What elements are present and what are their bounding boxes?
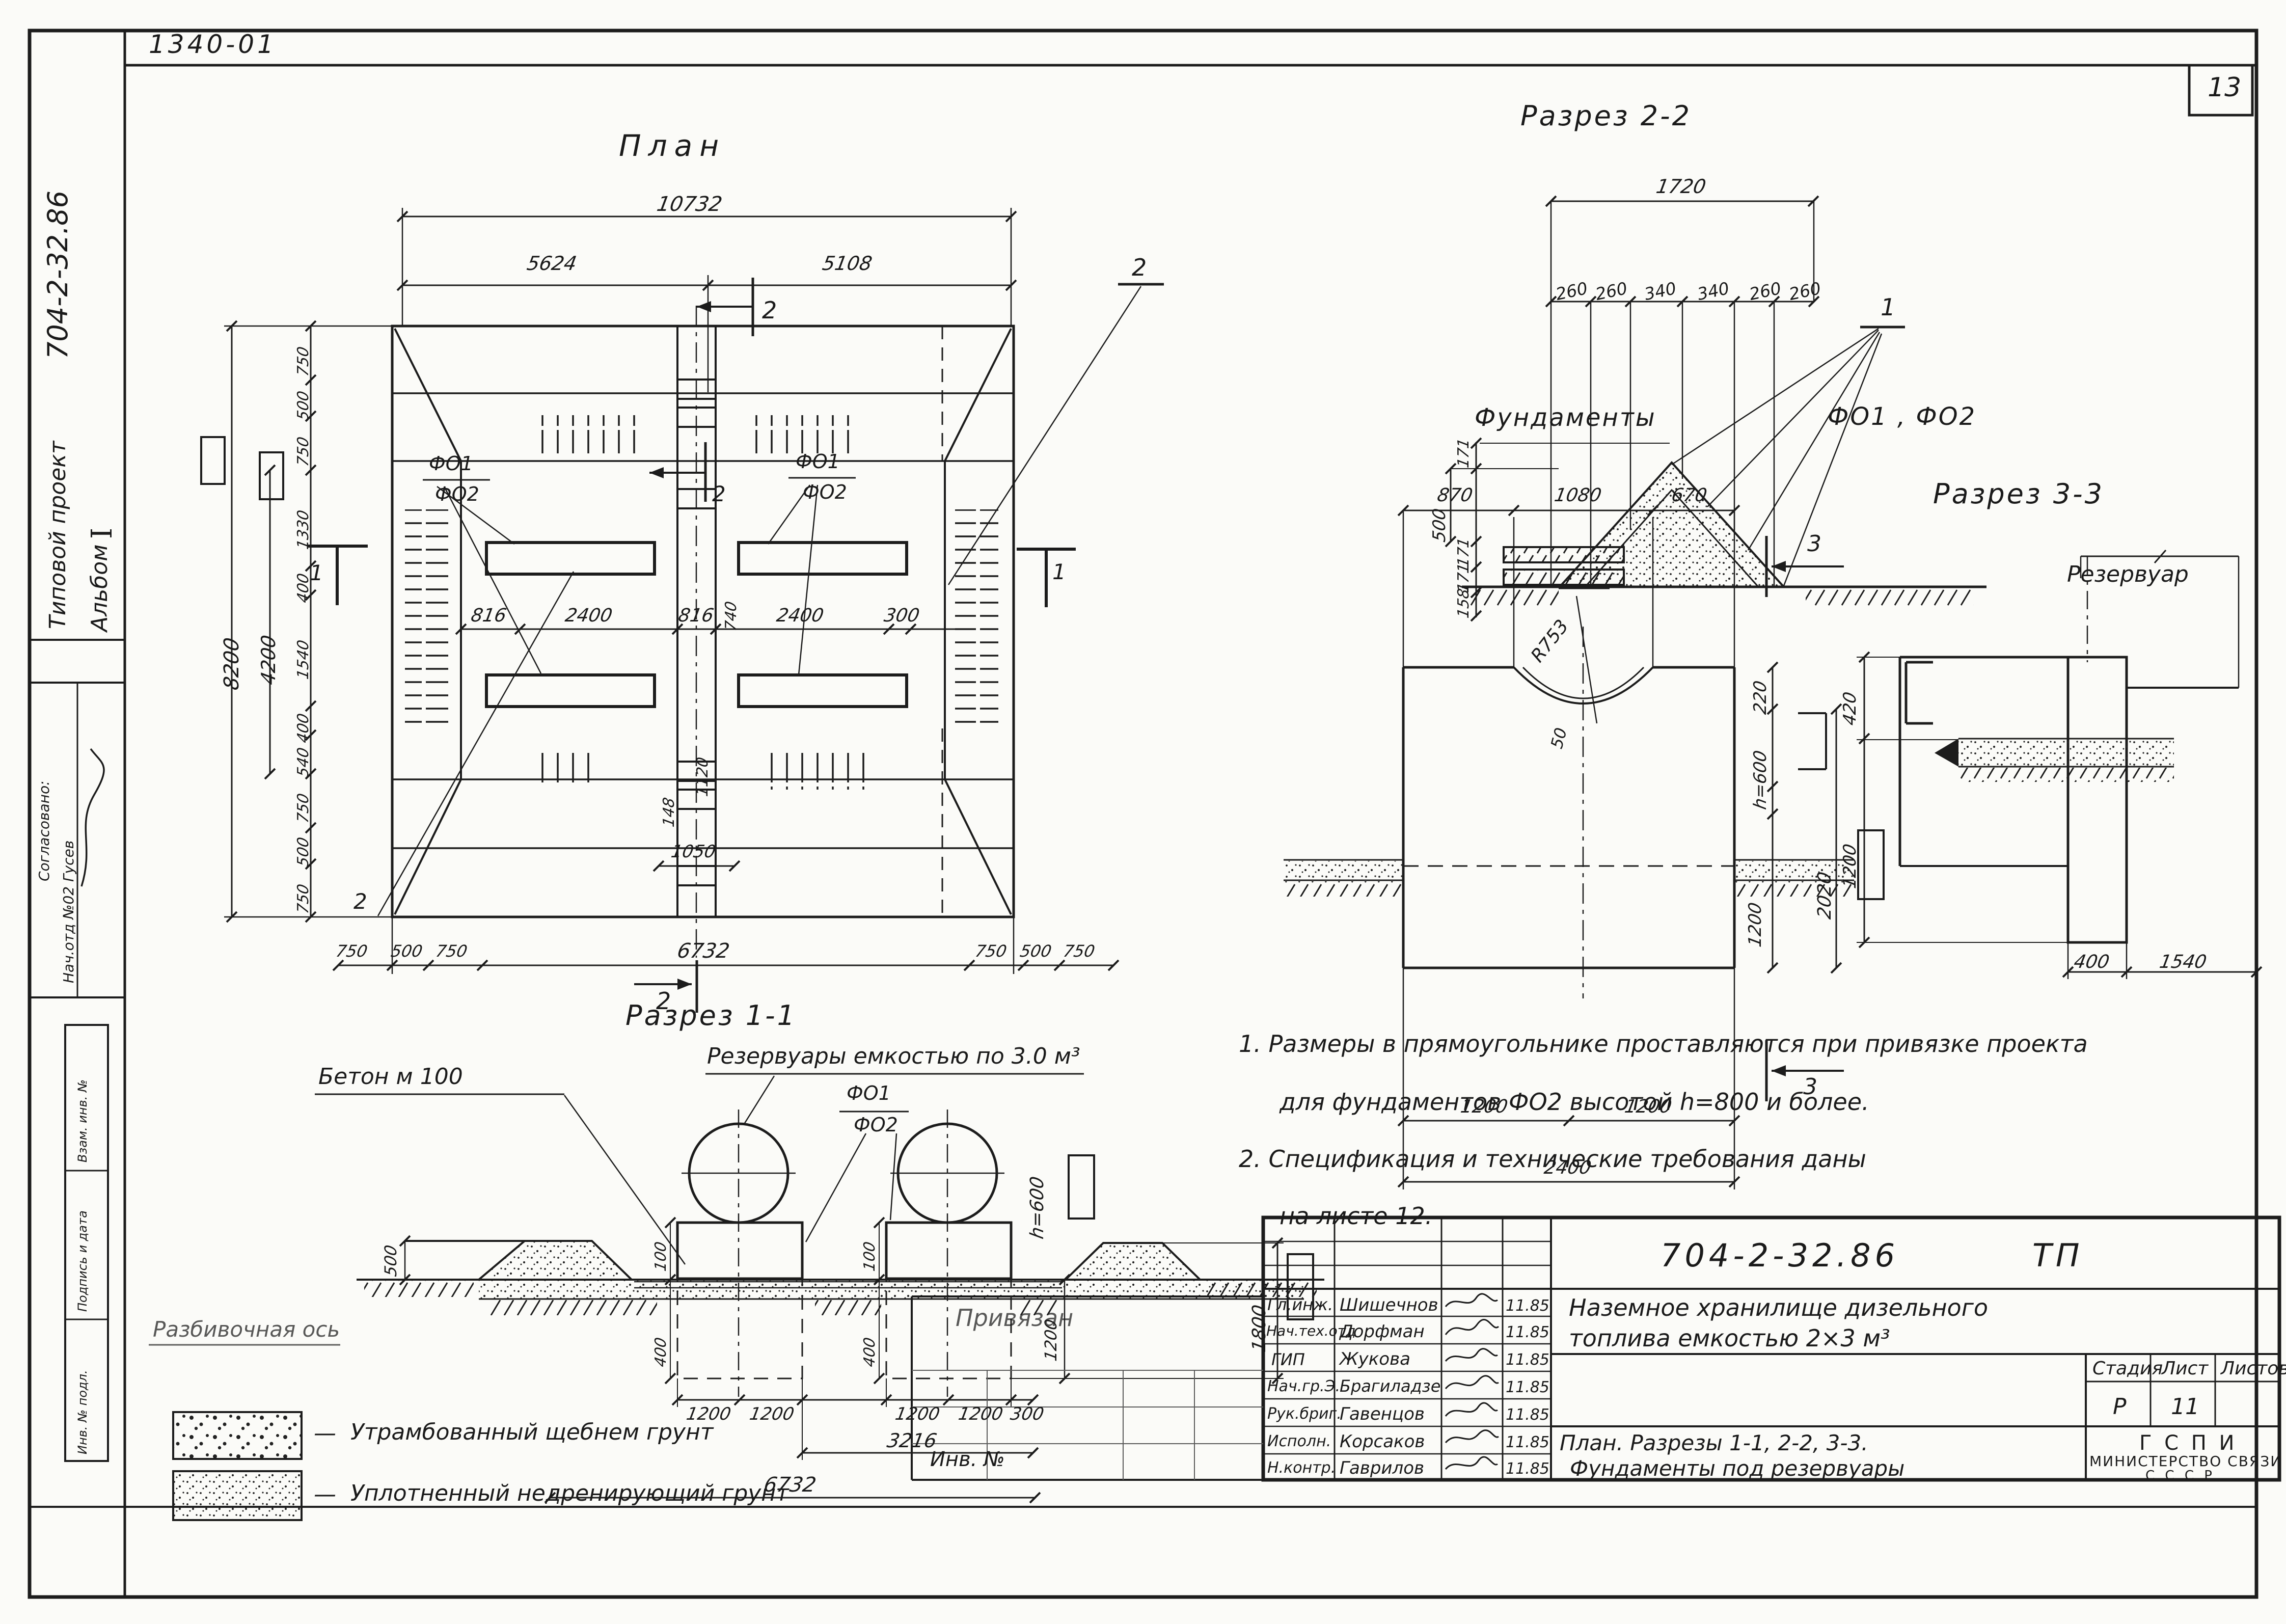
- sidebar-album-number: I: [86, 528, 119, 539]
- dim-label: 540: [294, 746, 312, 778]
- drawing-set-code: 1340-01: [149, 30, 277, 59]
- foundations-title-marks: ФО1 , ФО2: [1828, 402, 1976, 431]
- row-role: Исполн.: [1267, 1432, 1331, 1450]
- dim-label: 1200: [1745, 901, 1765, 949]
- note-line: на листе 12.: [1280, 1202, 1432, 1230]
- dim-label: 8200: [220, 636, 243, 692]
- note-line: для фундаментов ФО2 высотой h=800 и боле…: [1280, 1088, 1869, 1116]
- section-marker-1: 1: [1052, 559, 1066, 584]
- project-title-line1: Наземное хранилище дизельного: [1569, 1294, 1988, 1321]
- dim-label: 300: [882, 605, 921, 626]
- plan-title: План: [619, 128, 726, 163]
- dim-label: 750: [294, 436, 312, 468]
- dim-label: 750: [434, 941, 469, 961]
- section-1-1-title: Разрез 1-1: [625, 999, 797, 1032]
- dim-label: 100: [652, 1240, 670, 1273]
- sheet-value: 11: [2171, 1394, 2199, 1420]
- dim-label: 500: [390, 941, 424, 961]
- note-line: 2. Спецификация и технические требования…: [1239, 1145, 1866, 1173]
- dim-label: 816: [469, 605, 508, 626]
- dim-label: 5108: [821, 252, 874, 275]
- foundation-mark: ФО1: [429, 452, 473, 475]
- sidebar-album-label: Альбом: [87, 545, 113, 632]
- dim-label: 400: [294, 712, 312, 744]
- dim-label: 1540: [2158, 952, 2208, 972]
- frame-field-podpis-data: Подпись и дата: [75, 1210, 90, 1312]
- dim-label: 1200: [1840, 842, 1860, 890]
- dim-label: 670: [1670, 485, 1708, 506]
- stage-header: Стадия: [2092, 1358, 2163, 1379]
- row-date: 11.85: [1506, 1297, 1549, 1315]
- dim-label: 1540: [294, 639, 312, 681]
- dim-label: 158: [1455, 587, 1473, 619]
- dim-label: 2400: [775, 605, 825, 626]
- dim-label: 870: [1435, 485, 1474, 506]
- dim-label: 420: [1840, 690, 1860, 727]
- dim-label: 148: [660, 796, 678, 828]
- row-date: 11.85: [1506, 1323, 1549, 1341]
- dim-label: 816: [676, 605, 715, 626]
- row-role: ГИП: [1271, 1350, 1305, 1369]
- dim-label: 1200: [748, 1404, 796, 1424]
- foundation-mark: ФО1: [847, 1082, 891, 1104]
- sidebar-project-number: 704-2-32.86: [42, 191, 74, 359]
- section-2-2-title: Разрез 2-2: [1520, 100, 1692, 132]
- row-name: Шишечнов: [1340, 1295, 1438, 1315]
- dim-label: 220: [1750, 679, 1771, 716]
- axis-label: Разбивочная ось: [153, 1317, 340, 1342]
- sheet-content-line1: План. Разрезы 1-1, 2-2, 3-3.: [1560, 1430, 1868, 1455]
- row-date: 11.85: [1506, 1406, 1549, 1424]
- foundations-title: Фундаменты: [1475, 403, 1656, 432]
- row-name: Дорфман: [1340, 1321, 1425, 1342]
- dim-label: 4200: [257, 633, 280, 686]
- foundation-mark: ФО2: [803, 481, 847, 503]
- legend-dash: —: [314, 1420, 336, 1446]
- dim-label: 10732: [655, 193, 724, 216]
- section-marker-1: 1: [310, 560, 323, 585]
- dim-label: 750: [335, 941, 369, 961]
- dim-label: 1050: [669, 842, 717, 862]
- org-name: Г С П И: [2139, 1431, 2237, 1455]
- foundation-mark: ФО2: [435, 483, 479, 505]
- legend-dash: —: [314, 1481, 336, 1507]
- dim-label: 500: [294, 390, 312, 422]
- drawing-sheet: 1340-01 13 704-2-32.86 Типовой проект I …: [0, 0, 2286, 1624]
- dim-label: 400: [652, 1336, 670, 1368]
- legend-item-label: Уплотненный недренирующий грунт: [350, 1480, 789, 1506]
- sidebar-agreed-by: Нач.отд №02 Гусев: [60, 841, 77, 983]
- dim-label: 500: [1019, 941, 1053, 961]
- tank-label: Резервуар: [2067, 561, 2189, 587]
- section-marker-2: 2: [1132, 254, 1147, 281]
- dim-label: h=600: [1750, 749, 1771, 811]
- row-name: Корсаков: [1340, 1431, 1425, 1452]
- row-date: 11.85: [1506, 1351, 1549, 1369]
- project-title-line2: топлива емкостью 2×3 м³: [1569, 1324, 1890, 1352]
- dim-label: 400: [2072, 952, 2111, 972]
- row-date: 11.85: [1506, 1460, 1549, 1478]
- dim-label: 500: [381, 1243, 400, 1278]
- section-marker-2: 2: [353, 889, 367, 914]
- row-name: Гавенцов: [1340, 1404, 1425, 1424]
- sheets-header: Листов: [2221, 1358, 2286, 1379]
- dim-label: 2400: [563, 605, 614, 626]
- section-marker-2: 2: [762, 296, 777, 324]
- foundation-mark: ФО2: [854, 1114, 898, 1136]
- dim-label: h=600: [1027, 1175, 1048, 1240]
- dim-label: 750: [294, 792, 312, 824]
- legend-item-label: Утрамбованный щебнем грунт: [350, 1419, 714, 1445]
- sheet-content-line2: Фундаменты под резервуары: [1570, 1456, 1904, 1481]
- dim-label: 750: [294, 345, 312, 377]
- doc-code: 704-2-32.86: [1661, 1237, 1899, 1274]
- concrete-label: Бетон м 100: [318, 1064, 463, 1090]
- tanks-capacity-label: Резервуары емкостью по 3.0 м³: [707, 1043, 1080, 1069]
- row-role: Н.контр.: [1267, 1459, 1336, 1477]
- row-name: Брагиладзе: [1340, 1376, 1440, 1396]
- dim-label: 5624: [525, 252, 578, 275]
- dim-label: 6732: [675, 939, 731, 963]
- dim-label: 1200: [957, 1404, 1004, 1424]
- frame-field-inv-podl: Инв. № подл.: [75, 1370, 90, 1454]
- dim-label: 1200: [893, 1404, 941, 1424]
- row-name: Гаврилов: [1340, 1458, 1424, 1478]
- sidebar-agreed-label: Согласовано:: [36, 780, 52, 881]
- dim-label: 1080: [1553, 485, 1603, 506]
- row-role: Нач.гр.Э.: [1267, 1377, 1340, 1395]
- section-marker-3: 3: [1807, 531, 1821, 557]
- row-role: Гл.инж.: [1267, 1295, 1333, 1314]
- dim-label: 740: [722, 600, 740, 632]
- dim-label: 100: [861, 1240, 879, 1273]
- dim-label: 500: [294, 836, 312, 868]
- row-date: 11.85: [1506, 1378, 1549, 1396]
- dim-label: 750: [974, 941, 1009, 961]
- stamp-note: Привязан: [956, 1304, 1073, 1332]
- drawing-linework: [0, 0, 2286, 1624]
- stamp-inv-label: Инв. №: [930, 1448, 1005, 1471]
- dim-label: 750: [294, 883, 312, 915]
- sheet-header: Лист: [2162, 1358, 2208, 1379]
- dim-label: 171: [1455, 437, 1473, 469]
- foundation-mark: ФО1: [796, 450, 840, 473]
- dim-label: 1720: [1654, 175, 1707, 198]
- row-name: Жукова: [1340, 1349, 1410, 1369]
- dim-label: 400: [861, 1336, 879, 1368]
- doc-type: ТП: [2032, 1237, 2084, 1274]
- stage-value: Р: [2113, 1394, 2127, 1420]
- callout-marker-1: 1: [1881, 293, 1895, 321]
- dim-label: 1330: [294, 509, 312, 551]
- dim-label: 500: [1429, 507, 1450, 544]
- page-number: 13: [2208, 72, 2241, 103]
- dim-label: 1120: [694, 756, 712, 798]
- section-marker-2: 2: [712, 481, 726, 506]
- org-ministry: МИНИСТЕРСТВО СВЯЗИ: [2089, 1453, 2282, 1470]
- section-3-3-title: Разрез 3-3: [1933, 478, 2104, 510]
- sidebar-project-label: Типовой проект: [45, 441, 71, 630]
- dim-label: 2020: [1814, 870, 1835, 921]
- dim-label: 750: [1062, 941, 1097, 961]
- frame-field-vzam-inv: Взам. инв. №: [75, 1079, 90, 1162]
- org-country: С С С Р: [2145, 1468, 2215, 1483]
- row-date: 11.85: [1506, 1433, 1549, 1451]
- note-line: 1. Размеры в прямоугольнике проставляютс…: [1239, 1030, 2088, 1058]
- row-role: Рук.бриг.: [1267, 1405, 1342, 1423]
- dim-label: 300: [1009, 1404, 1045, 1424]
